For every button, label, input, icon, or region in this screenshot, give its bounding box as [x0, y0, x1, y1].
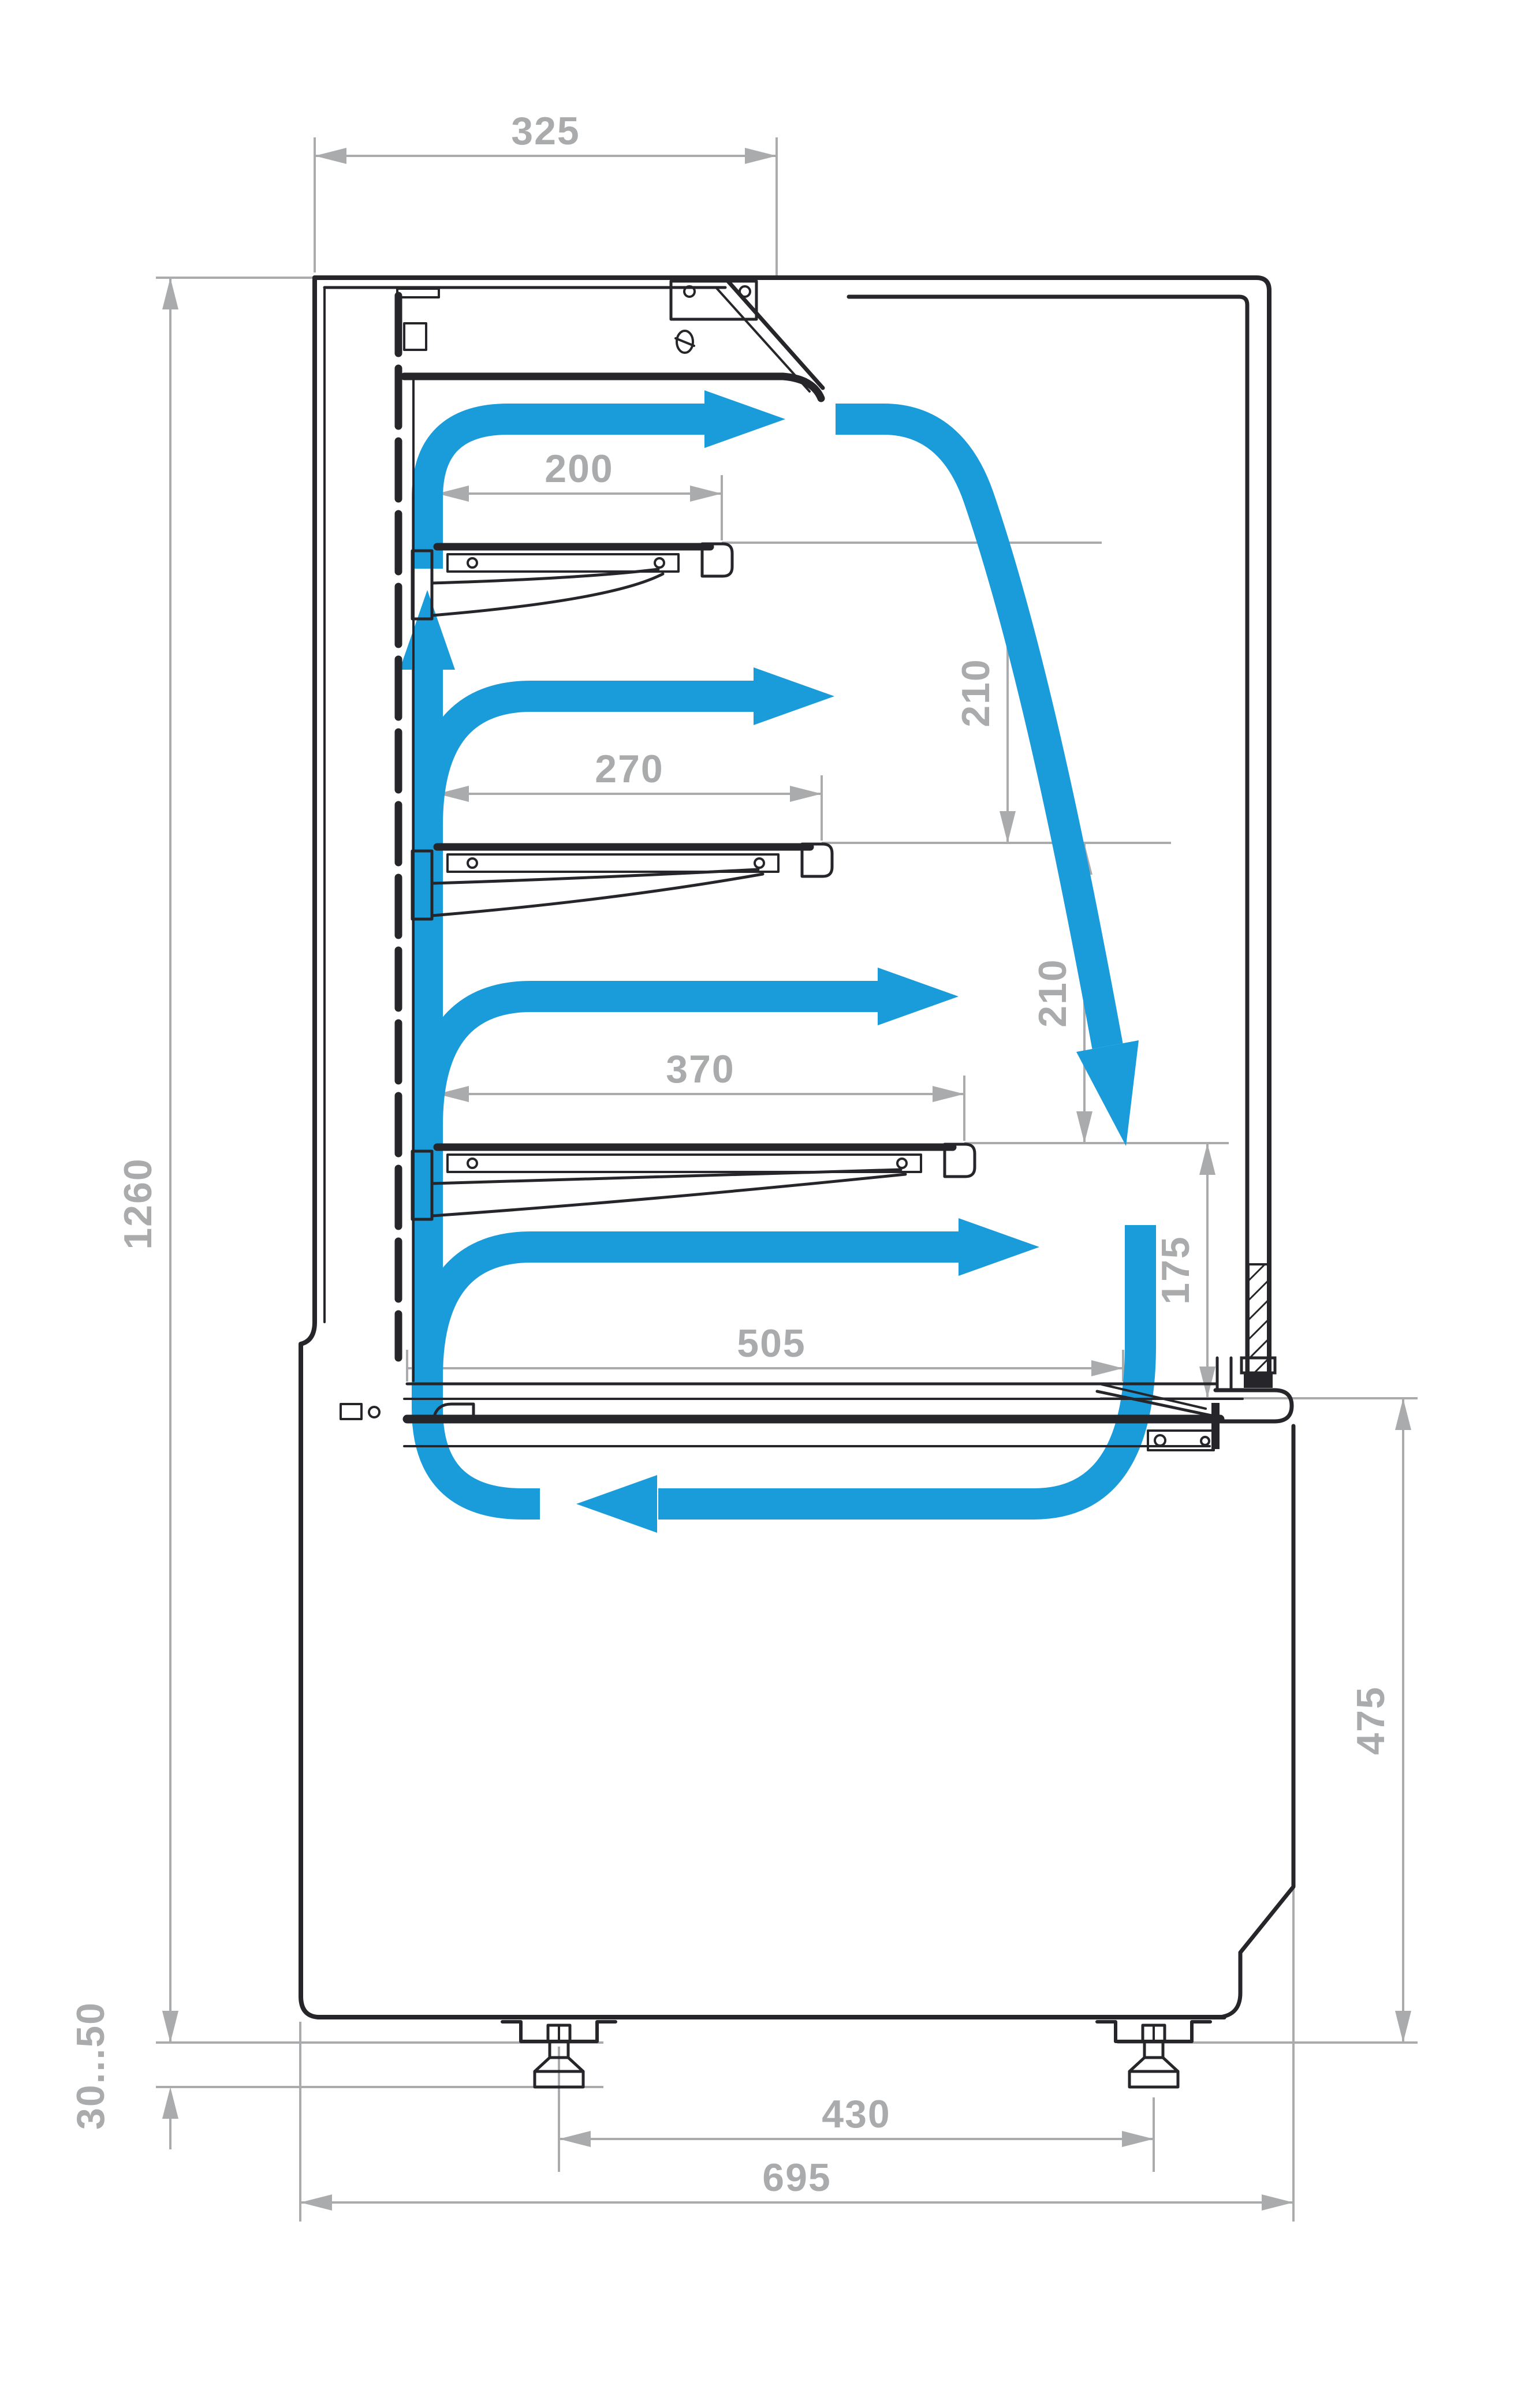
structure-layer: [301, 278, 1293, 2087]
shelf-2-support-arm: [432, 869, 763, 916]
canopy-bottom-panel: [404, 376, 821, 398]
dim-leg-adjustment: 30...50: [69, 1980, 603, 2149]
airflow-shelf1-band: [427, 696, 754, 826]
dim-shelf-gap-lower-label: 210: [1031, 958, 1075, 1027]
right-foot-pad: [1129, 2071, 1178, 2087]
dim-leg-spacing-label: 430: [822, 2092, 890, 2136]
shelf-2-rail-hole-right: [755, 858, 764, 868]
airflow-shelf2-arrowhead: [878, 968, 959, 1025]
shelf-1-support-arm: [432, 569, 663, 615]
dim-front-opening: 175: [1154, 1143, 1215, 1398]
airflow-return-arrowhead: [576, 1475, 657, 1533]
display-case-cross-section: 325 200 270 370: [0, 0, 1540, 2408]
front-ledge: [1215, 1390, 1292, 1421]
airflow-diagram: 325 200 270 370: [0, 0, 1540, 2408]
dim-shelf-gap-upper-label: 210: [954, 658, 998, 727]
front-glass-clamp-block: [1244, 1374, 1273, 1388]
canopy-rear-tab: [397, 289, 439, 297]
airflow-well-arrowhead: [959, 1218, 1039, 1276]
right-foot-stem: [1144, 2041, 1163, 2058]
shelf-1: [412, 544, 732, 619]
front-glass-inner: [849, 297, 1247, 1386]
shelf-3: [412, 1144, 975, 1219]
dim-leg-spacing: 430: [559, 2047, 1154, 2172]
airflow-front-descender-band: [658, 1225, 1140, 1504]
rear-wall-stub: [341, 1404, 361, 1419]
canopy-screw-slot: [676, 338, 694, 346]
dim-shelf-top-label: 200: [545, 447, 613, 491]
dim-canopy-depth: 325: [315, 109, 777, 276]
shelf-3-rail-hole-left: [468, 1159, 477, 1168]
dim-display-height-label: 1260: [116, 1158, 160, 1249]
airflow-canopy-discharge-arrowhead: [704, 390, 785, 448]
front-frame-posts: [1217, 1358, 1231, 1388]
canopy-rear-hook: [404, 323, 426, 350]
right-foot: [1097, 2022, 1210, 2087]
front-bracket-bolt-left: [1155, 1435, 1165, 1446]
airflow-riser-arrowhead: [400, 590, 455, 670]
dim-shelf-lower-label: 370: [666, 1047, 734, 1091]
dim-canopy-depth-label: 325: [511, 109, 580, 153]
shelf-2-rail-hole-left: [468, 858, 477, 868]
front-hanger-bar: [1211, 1403, 1220, 1449]
dim-front-opening-label: 175: [1154, 1235, 1198, 1304]
rear-wall-hole: [369, 1407, 379, 1417]
shelf-3-rail: [448, 1155, 921, 1172]
airflow-shelf1-arrowhead: [754, 667, 834, 725]
front-glass-outer: [1256, 278, 1269, 1386]
shelf-2-rail: [448, 854, 778, 872]
airflow-shelf2-band: [427, 996, 878, 1126]
shelf-1-rail-hole-right: [655, 558, 664, 568]
rear-duct: [301, 278, 413, 2017]
front-glass-clamp-hatch: [1248, 1264, 1268, 1387]
dim-overall-depth: 695: [300, 1426, 1293, 2222]
dim-well-depth-label: 505: [737, 1321, 806, 1365]
air-curtain-band: [836, 419, 1108, 1046]
dim-overall-depth-label: 695: [762, 2156, 831, 2200]
dim-shelf-middle-label: 270: [595, 747, 663, 791]
front-bracket-bolt-right: [1201, 1437, 1209, 1445]
shelf-1-rail-hole-left: [468, 558, 477, 568]
right-foot-cone: [1129, 2058, 1178, 2071]
rear-wall-outer: [301, 278, 318, 2017]
base-front-profile: [1220, 1426, 1293, 2017]
dim-leg-adjustment-label: 30...50: [69, 2002, 113, 2130]
front-riser-slant-outer: [1097, 1391, 1211, 1416]
shelf-3-support-arm: [432, 1170, 905, 1216]
display-well: [404, 1358, 1292, 1450]
dim-base-height: 475: [1117, 1398, 1418, 2043]
dim-base-height-label: 475: [1349, 1686, 1393, 1754]
canopy-bolt-right: [740, 286, 750, 297]
shelf-3-rail-hole-right: [897, 1159, 907, 1168]
shelf-2: [412, 844, 832, 919]
airflow-well-band: [427, 1247, 959, 1377]
dim-display-height: 1260: [116, 278, 603, 2043]
shelf-1-rail: [448, 554, 678, 572]
